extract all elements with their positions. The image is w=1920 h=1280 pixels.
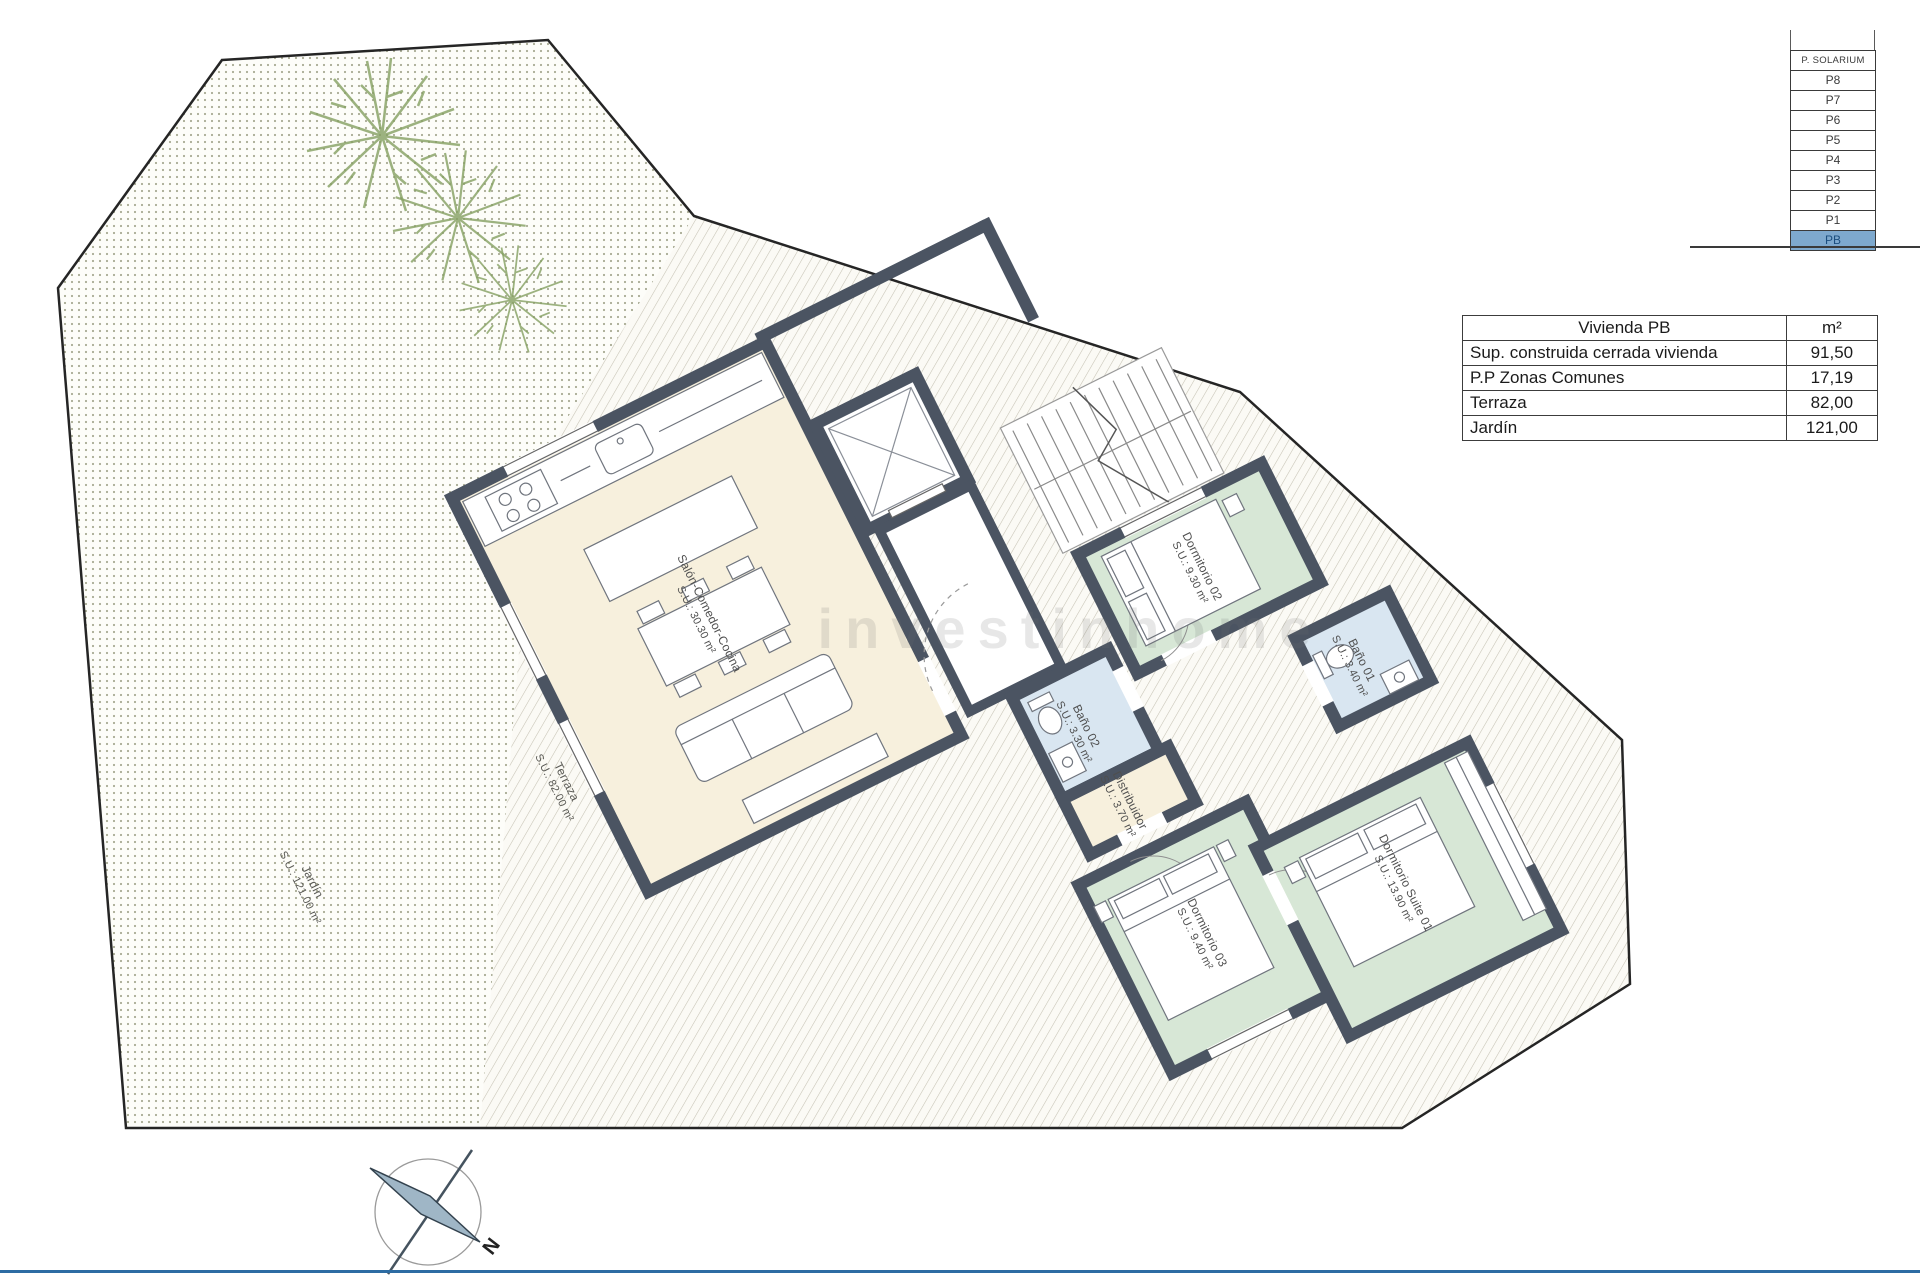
table-row: Jardín 121,00 xyxy=(1463,416,1878,441)
table-row: Terraza 82,00 xyxy=(1463,391,1878,416)
level-row-p2[interactable]: P2 xyxy=(1791,191,1875,211)
tower-guide-line xyxy=(1790,30,1791,50)
level-row-p1[interactable]: P1 xyxy=(1791,211,1875,231)
level-row-pb-active[interactable]: PB xyxy=(1791,231,1875,251)
compass-north-label: N xyxy=(479,1234,505,1259)
areas-table: Vivienda PB m² Sup. construida cerrada v… xyxy=(1462,315,1878,441)
floor-level-selector: P. SOLARIUM P8 P7 P6 P5 P4 P3 P2 P1 PB xyxy=(1790,50,1876,251)
level-row-p6[interactable]: P6 xyxy=(1791,111,1875,131)
areas-table-header: Vivienda PB m² xyxy=(1463,316,1878,341)
ground-line xyxy=(1690,246,1920,248)
areas-table-unit: m² xyxy=(1786,316,1877,341)
row-label: Terraza xyxy=(1463,391,1787,416)
tower-guide-line xyxy=(1874,30,1875,50)
compass-rose: N xyxy=(370,1150,505,1274)
bottom-accent-line xyxy=(0,1270,1920,1273)
level-row-p8[interactable]: P8 xyxy=(1791,71,1875,91)
level-row-p7[interactable]: P7 xyxy=(1791,91,1875,111)
site-plan-drawing: Salón-Comedor-CocinaS.U.: 30.30 m² Baño … xyxy=(0,0,1920,1280)
floor-plan-page: Salón-Comedor-CocinaS.U.: 30.30 m² Baño … xyxy=(0,0,1920,1280)
table-row: P.P Zonas Comunes 17,19 xyxy=(1463,366,1878,391)
level-row-p4[interactable]: P4 xyxy=(1791,151,1875,171)
row-label: P.P Zonas Comunes xyxy=(1463,366,1787,391)
level-row-solarium[interactable]: P. SOLARIUM xyxy=(1791,51,1875,71)
table-row: Sup. construida cerrada vivienda 91,50 xyxy=(1463,341,1878,366)
areas-table-title: Vivienda PB xyxy=(1463,316,1787,341)
row-value: 91,50 xyxy=(1786,341,1877,366)
row-label: Jardín xyxy=(1463,416,1787,441)
row-value: 121,00 xyxy=(1786,416,1877,441)
exterior-wall xyxy=(984,220,1034,320)
row-label: Sup. construida cerrada vivienda xyxy=(1463,341,1787,366)
row-value: 17,19 xyxy=(1786,366,1877,391)
row-value: 82,00 xyxy=(1786,391,1877,416)
level-row-p3[interactable]: P3 xyxy=(1791,171,1875,191)
level-row-p5[interactable]: P5 xyxy=(1791,131,1875,151)
